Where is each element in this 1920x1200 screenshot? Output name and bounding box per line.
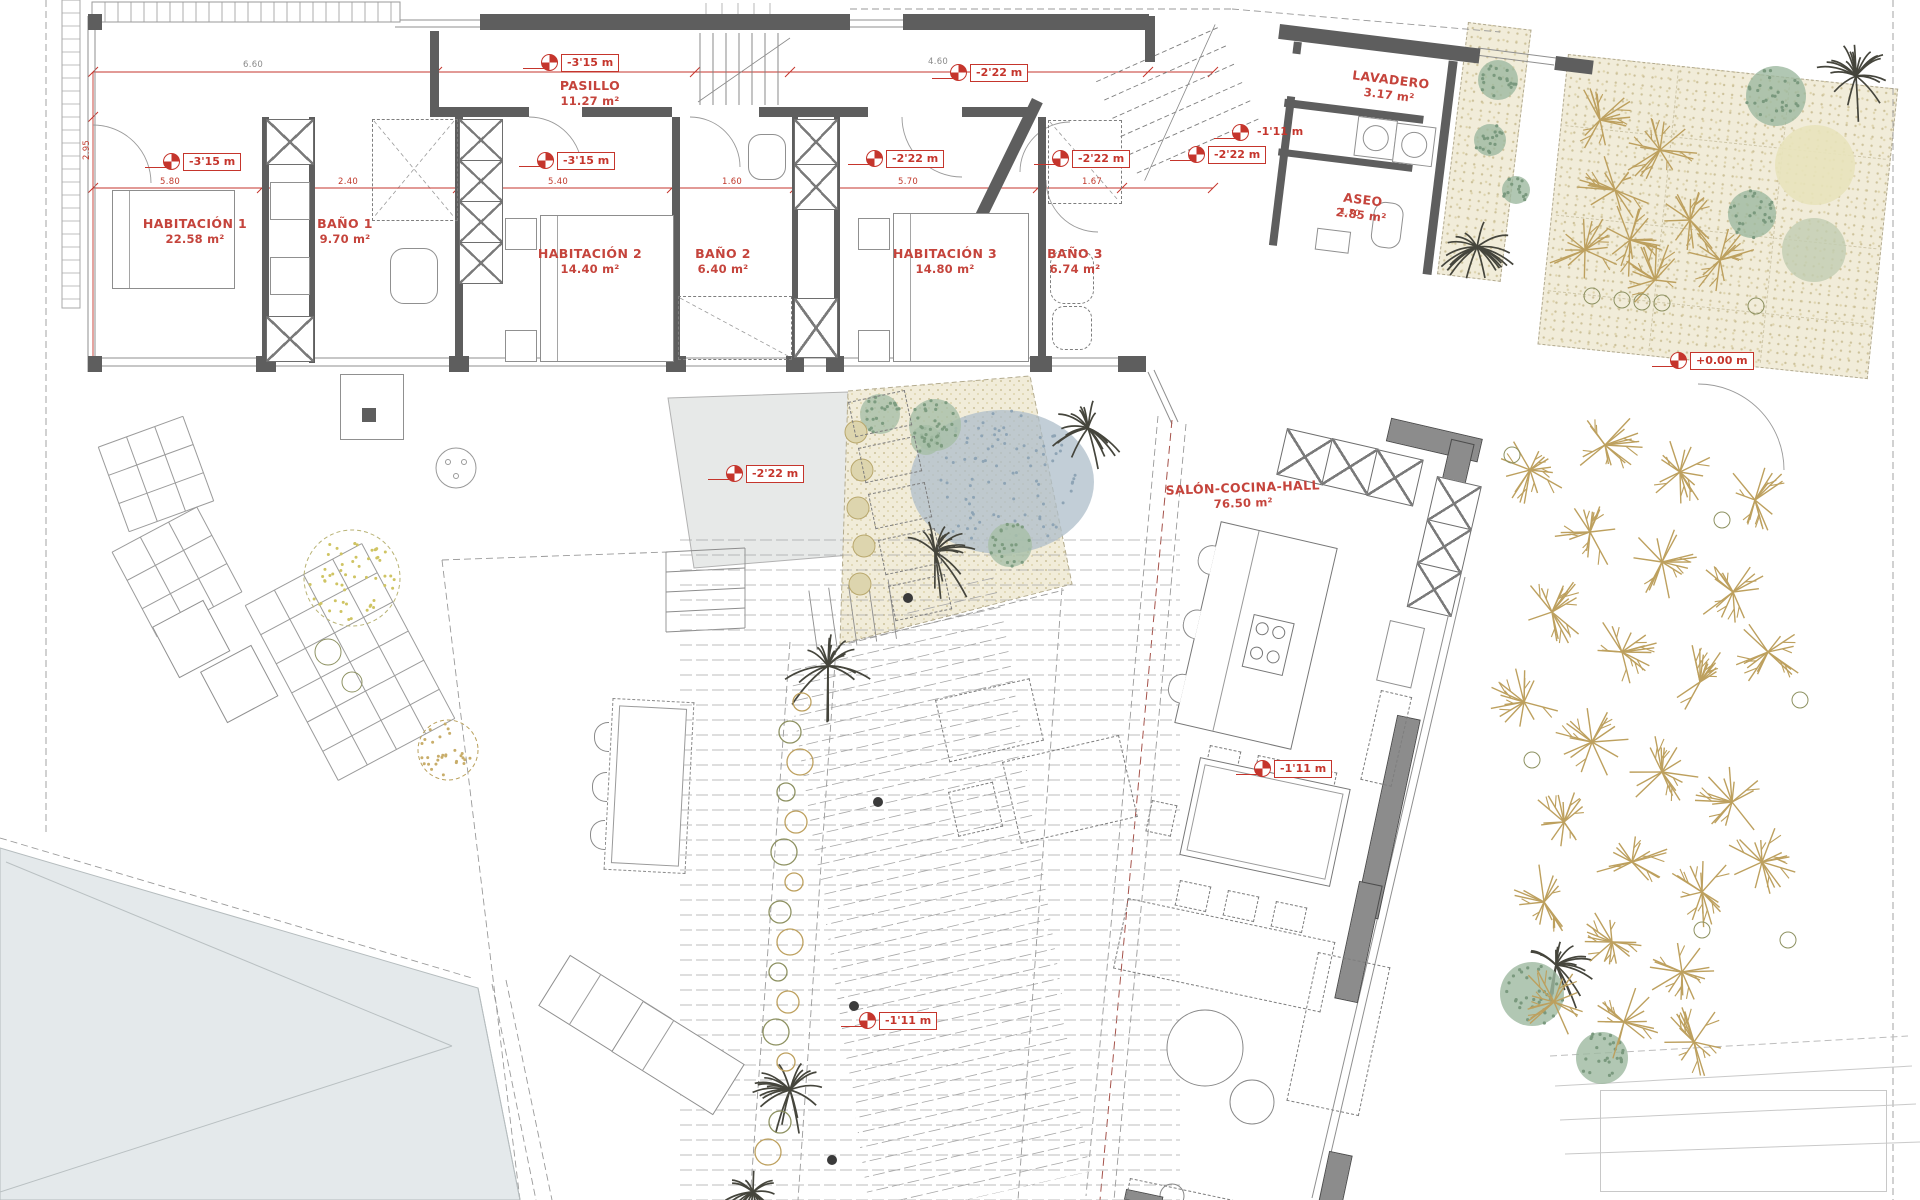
room-area: 6.40 m² xyxy=(663,262,783,277)
bush-dot xyxy=(1548,977,1551,980)
plant-stroke xyxy=(1624,1021,1647,1022)
shrub-icon xyxy=(1584,288,1600,304)
paver-line xyxy=(323,689,440,751)
plant-stroke xyxy=(1694,1012,1715,1042)
level-icon xyxy=(726,465,743,482)
plant-stroke xyxy=(1652,972,1682,990)
bush-dot xyxy=(1748,86,1751,89)
plant-stroke xyxy=(1590,426,1605,445)
table-top xyxy=(611,705,687,866)
shrub-icon xyxy=(1614,292,1630,308)
bush-dot xyxy=(944,401,947,404)
shrub-icon xyxy=(1714,512,1730,528)
canopy-dot xyxy=(965,441,968,444)
canopy-dot xyxy=(1020,414,1023,417)
bush-dot xyxy=(1758,206,1761,209)
canopy-dot xyxy=(341,584,344,587)
plant-stroke xyxy=(1732,782,1734,802)
canopy-dot xyxy=(969,484,972,487)
canopy-dot xyxy=(1038,515,1041,518)
bush-dot xyxy=(1771,119,1774,122)
canopy-dot xyxy=(992,412,995,415)
shrub-icon xyxy=(1664,1007,1721,1075)
plant-stroke xyxy=(1564,526,1574,532)
plant-stroke xyxy=(1680,457,1710,472)
bush-dot xyxy=(1518,968,1521,971)
canopy-dot xyxy=(376,556,379,559)
canopy-dot xyxy=(340,610,343,613)
level-value: -3'15 m xyxy=(561,54,619,72)
fence-wall xyxy=(62,0,80,308)
dimension-label: 4.60 xyxy=(928,57,948,67)
plant-stroke xyxy=(1616,110,1630,111)
bush-dot xyxy=(1014,543,1017,546)
plant-stroke xyxy=(1584,250,1585,278)
shrub-icon xyxy=(1703,566,1763,622)
bush-dot xyxy=(1773,95,1776,98)
canopy-dot xyxy=(995,464,998,467)
plant-stroke xyxy=(1856,76,1858,122)
plant-stroke xyxy=(1782,649,1792,653)
bush-dot xyxy=(1516,177,1519,180)
canopy-dot xyxy=(321,575,324,578)
plant-stroke xyxy=(1732,781,1758,802)
driveway-outline xyxy=(1600,1090,1887,1192)
bush-dot xyxy=(1519,1001,1522,1004)
shrub-icon xyxy=(1630,736,1699,801)
bollard-light-icon xyxy=(827,1155,837,1165)
bush-dot xyxy=(1475,146,1478,149)
bush-dot xyxy=(1769,69,1772,72)
canopy-dot xyxy=(437,755,440,758)
door-arc xyxy=(1698,384,1784,470)
canopy-dot xyxy=(353,575,356,578)
level-value: -2'22 m xyxy=(746,465,804,483)
canopy-dot xyxy=(358,565,361,568)
plant-stroke xyxy=(1585,219,1603,250)
bush-dot xyxy=(1514,83,1517,86)
canopy-dot xyxy=(331,572,334,575)
paver-line xyxy=(169,522,214,607)
plant-stroke xyxy=(1524,681,1534,702)
nightstand xyxy=(505,330,537,362)
plant-stroke xyxy=(1646,562,1662,593)
canopy-dot xyxy=(972,513,975,516)
shower xyxy=(678,296,792,360)
canopy-dot xyxy=(1051,459,1054,462)
shrub-icon xyxy=(1748,298,1764,314)
bush-dot xyxy=(1609,1042,1612,1045)
wall-segment xyxy=(1145,16,1155,62)
bush-dot xyxy=(1507,981,1510,984)
plant-stroke xyxy=(1680,945,1685,956)
bush-dot xyxy=(1508,178,1511,181)
planter-post xyxy=(362,408,376,422)
bush-dot xyxy=(1482,73,1485,76)
bush-dot xyxy=(1608,1074,1611,1077)
bush-dot xyxy=(934,408,937,411)
level-marker: -2'22 m xyxy=(950,64,1028,82)
plant-stroke xyxy=(1611,954,1614,962)
canopy-dot xyxy=(1062,501,1065,504)
bush-dot xyxy=(1518,191,1521,194)
bush-dot xyxy=(1000,528,1003,531)
bush-dot xyxy=(935,403,938,406)
canopy-dot xyxy=(1044,463,1047,466)
canopy-dot xyxy=(966,437,969,440)
shrub-icon xyxy=(847,497,869,519)
bush-dot xyxy=(1517,188,1520,191)
plant-stroke xyxy=(1716,592,1733,607)
plant-stroke xyxy=(1587,708,1592,742)
canopy-dot xyxy=(431,741,434,744)
shrub-icon xyxy=(793,693,811,711)
plant-stroke xyxy=(1737,606,1739,617)
plant-stroke xyxy=(1749,624,1768,652)
canopy-dot xyxy=(447,727,450,730)
bush-dot xyxy=(1741,222,1744,225)
plant-stroke xyxy=(1590,529,1615,532)
bush-dot xyxy=(924,409,927,412)
shrub-icon xyxy=(777,929,803,955)
bush-dot xyxy=(1758,84,1761,87)
canopy-dot xyxy=(438,735,441,738)
shrub-icon xyxy=(1528,582,1578,643)
bush-dot xyxy=(994,538,997,541)
canopy-dot xyxy=(393,578,396,581)
canopy-dot xyxy=(968,502,971,505)
level-icon xyxy=(541,54,558,71)
plant-stroke xyxy=(1564,822,1575,838)
plant-stroke xyxy=(1698,904,1703,911)
plant-stroke xyxy=(1599,134,1603,144)
paver-line xyxy=(127,437,158,522)
canopy-dot xyxy=(1010,410,1013,413)
bush-dot xyxy=(1010,564,1013,567)
bush-dot xyxy=(1795,102,1798,105)
plant-stroke xyxy=(1624,1022,1658,1033)
bush-dot xyxy=(945,428,948,431)
bush-dot xyxy=(1606,1057,1609,1060)
shrub-icon xyxy=(1580,418,1642,468)
bush-dot xyxy=(1620,1060,1623,1063)
bush-dot xyxy=(1000,555,1003,558)
bollard-light-icon xyxy=(849,1001,859,1011)
plant-stroke xyxy=(1632,862,1660,877)
shrub-icon xyxy=(785,873,803,891)
paver-line xyxy=(98,447,129,532)
level-marker: -2'22 m xyxy=(726,465,804,483)
plant-stroke xyxy=(1644,247,1655,280)
deck-board xyxy=(644,639,1131,751)
bush-dot xyxy=(1487,150,1490,153)
level-icon xyxy=(1052,150,1069,167)
canopy-dot xyxy=(1042,525,1045,528)
canopy-dot xyxy=(383,575,386,578)
shrub-icon xyxy=(853,535,875,557)
toilet xyxy=(748,134,786,180)
shrub-icon xyxy=(1650,943,1714,1000)
plant-stroke xyxy=(1499,709,1510,710)
door-arc xyxy=(690,117,740,167)
plant-stroke xyxy=(1655,120,1659,133)
canopy-dot xyxy=(343,588,346,591)
canopy-dot xyxy=(998,429,1001,432)
canopy-dot xyxy=(334,599,337,602)
bush-dot xyxy=(1505,990,1508,993)
bush-dot xyxy=(998,550,1001,553)
canopy-dot xyxy=(966,527,969,530)
bush-dot xyxy=(1729,206,1732,209)
bush-dot xyxy=(927,443,930,446)
bush-dot xyxy=(1540,965,1543,968)
shrub-icon xyxy=(1695,767,1760,830)
bush-dot xyxy=(921,426,924,429)
shrub-icon xyxy=(1694,922,1710,938)
level-value: -2'22 m xyxy=(1072,150,1130,168)
bush-dot xyxy=(1500,132,1503,135)
dimension-label: 5.80 xyxy=(160,177,180,187)
plant-stroke xyxy=(827,666,828,722)
plant-stroke xyxy=(1630,239,1653,240)
shrub-icon xyxy=(1792,692,1808,708)
bush-dot xyxy=(1499,77,1502,80)
bed xyxy=(540,215,674,362)
level-marker: -1'11 m xyxy=(1254,760,1332,778)
plant-stroke xyxy=(1584,219,1585,250)
bush-dot xyxy=(916,416,919,419)
plant-stroke xyxy=(1544,902,1561,928)
wall-segment xyxy=(1292,41,1301,54)
canopy-dot xyxy=(339,569,342,572)
canopy-dot xyxy=(1059,450,1062,453)
canopy-dot xyxy=(462,762,465,765)
bush-dot xyxy=(913,408,916,411)
bush-dot xyxy=(1555,982,1558,985)
deck-board xyxy=(721,975,1208,1087)
canopy-dot xyxy=(374,577,377,580)
bush-dot xyxy=(1735,214,1738,217)
level-icon xyxy=(537,152,554,169)
paver-line xyxy=(140,537,185,622)
stair-tread xyxy=(1121,81,1245,136)
cabinet-icon xyxy=(266,119,314,165)
shrub-icon xyxy=(779,721,801,743)
bush-icon xyxy=(342,672,362,692)
bush-dot xyxy=(1759,113,1762,116)
bush-dot xyxy=(1769,86,1772,89)
bush-dot xyxy=(1608,1060,1611,1063)
bush-dot xyxy=(936,442,939,445)
canopy-dot xyxy=(946,481,949,484)
canopy-dot xyxy=(384,550,387,553)
shrub-icon xyxy=(777,1053,795,1071)
canopy-dot xyxy=(946,496,949,499)
bush-icon xyxy=(1782,218,1846,282)
shrub-icon xyxy=(785,811,807,833)
bush-dot xyxy=(923,440,926,443)
stair-walkline xyxy=(698,38,790,102)
shrub-icon xyxy=(755,1139,781,1165)
plant-stroke xyxy=(1661,747,1662,772)
bush-dot xyxy=(1495,67,1498,70)
stove-icon xyxy=(1242,614,1295,676)
canopy-dot xyxy=(1015,447,1018,450)
bush-dot xyxy=(1595,1046,1598,1049)
plant-stroke xyxy=(1732,802,1754,830)
wall-segment xyxy=(430,31,439,117)
bush-dot xyxy=(929,428,932,431)
plant-stroke xyxy=(1664,220,1690,221)
shrub-icon xyxy=(1555,506,1615,564)
canopy-dot xyxy=(1042,503,1045,506)
bush-dot xyxy=(990,551,993,554)
bush-dot xyxy=(1612,1041,1615,1044)
bush-dot xyxy=(933,419,936,422)
plant-stroke xyxy=(1598,550,1600,565)
shrub-icon xyxy=(763,1019,789,1045)
bush-dot xyxy=(1738,222,1741,225)
bed xyxy=(893,213,1029,362)
bush-dot xyxy=(954,434,957,437)
canopy-dot xyxy=(1002,426,1005,429)
bush-dot xyxy=(1781,101,1784,104)
level-value: +0.00 m xyxy=(1690,352,1754,370)
bush-dot xyxy=(1491,86,1494,89)
bush-dot xyxy=(1770,201,1773,204)
canopy-dot xyxy=(1035,449,1038,452)
plant-stroke xyxy=(1737,656,1750,659)
bush-dot xyxy=(1611,1072,1614,1075)
paver-line xyxy=(292,631,409,693)
shrub-icon xyxy=(1538,792,1584,846)
paver-line xyxy=(127,535,212,580)
canopy-dot xyxy=(389,574,392,577)
wall-segment xyxy=(903,14,1149,30)
level-marker: -1'11 m xyxy=(859,1012,937,1030)
plant-stroke xyxy=(1744,629,1768,652)
canopy-dot xyxy=(1012,497,1015,500)
bush-dot xyxy=(1768,216,1771,219)
bush-dot xyxy=(1491,136,1494,139)
plant-stroke xyxy=(1531,483,1534,492)
level-marker: -3'15 m xyxy=(541,54,619,72)
tree-canopy xyxy=(304,530,400,626)
bush-dot xyxy=(913,431,916,434)
bush-dot xyxy=(1616,1057,1619,1060)
plant-stroke xyxy=(1677,682,1700,698)
bush-dot xyxy=(924,433,927,436)
plant-stroke xyxy=(1685,682,1700,709)
canopy-dot xyxy=(345,602,348,605)
canopy-dot xyxy=(963,458,966,461)
canopy-dot xyxy=(972,496,975,499)
level-icon xyxy=(1254,760,1271,777)
canopy-dot xyxy=(427,763,430,766)
plant-stroke xyxy=(1632,862,1649,880)
canopy-dot xyxy=(978,521,981,524)
window-line xyxy=(1148,372,1172,424)
canopy-dot xyxy=(992,513,995,516)
boundary-line xyxy=(442,552,668,560)
plant-stroke xyxy=(1530,586,1552,612)
bush-dot xyxy=(1482,134,1485,137)
shrub-icon xyxy=(1598,622,1657,683)
canopy-dot xyxy=(328,609,331,612)
plant-stroke xyxy=(1592,739,1628,742)
canopy-dot xyxy=(444,722,447,725)
canopy-dot xyxy=(982,421,985,424)
plant-stroke xyxy=(1514,442,1530,470)
bush-icon xyxy=(1478,60,1518,100)
plant-stroke xyxy=(1528,612,1552,620)
shrub-icon xyxy=(1729,828,1795,894)
canopy-dot xyxy=(1051,435,1054,438)
level-icon xyxy=(1188,146,1205,163)
shrub-icon xyxy=(1491,669,1558,727)
shrub-icon xyxy=(1580,88,1631,148)
canopy-dot xyxy=(341,563,344,566)
plant-stroke xyxy=(1777,859,1787,864)
canopy-dot xyxy=(365,576,368,579)
bush-dot xyxy=(923,403,926,406)
plant-stroke xyxy=(1655,259,1675,280)
bush-dot xyxy=(1588,1071,1591,1074)
level-value: -3'15 m xyxy=(557,152,615,170)
room-label-habitacion-2: HABITACIÓN 2 14.40 m² xyxy=(500,246,680,277)
bush-dot xyxy=(1760,200,1763,203)
step-line xyxy=(666,608,745,612)
room-label-pasillo: PASILLO 11.27 m² xyxy=(510,78,670,109)
bush-dot xyxy=(1515,998,1518,1001)
coffee-table xyxy=(1230,1080,1274,1124)
bush-dot xyxy=(1494,130,1497,133)
level-icon xyxy=(1232,124,1249,141)
bush-dot xyxy=(1021,561,1024,564)
plan-linework xyxy=(0,0,1920,1200)
wall-segment xyxy=(1038,117,1046,363)
canopy-dot xyxy=(383,584,386,587)
plant-stroke xyxy=(1563,802,1564,822)
shrub-icon xyxy=(1585,913,1642,964)
bush-dot xyxy=(1492,94,1495,97)
canopy-dot xyxy=(1071,482,1074,485)
canopy-dot xyxy=(969,517,972,520)
plant-stroke xyxy=(1666,785,1668,795)
plant-stroke xyxy=(1662,562,1669,598)
canopy-dot xyxy=(965,498,968,501)
bollard-light-icon xyxy=(873,797,883,807)
plant-stroke xyxy=(1622,652,1651,653)
bush-dot xyxy=(950,423,953,426)
plant-stroke xyxy=(1734,862,1762,875)
room-area: 14.40 m² xyxy=(500,262,680,277)
level-marker: +0.00 m xyxy=(1670,352,1754,370)
bush-dot xyxy=(921,436,924,439)
bed-pillow-line xyxy=(894,214,911,361)
plant-stroke xyxy=(1574,508,1590,532)
canopy-dot xyxy=(344,573,347,576)
bush-dot xyxy=(1609,1034,1612,1037)
plant-stroke xyxy=(1655,280,1676,282)
coffee-table xyxy=(1167,1010,1243,1086)
wall-segment xyxy=(759,107,868,117)
bush-dot xyxy=(1538,990,1541,993)
plant-stroke xyxy=(1682,892,1690,895)
wall-segment xyxy=(88,356,102,372)
paver-line xyxy=(112,552,157,637)
bush-dot xyxy=(1591,1033,1594,1036)
